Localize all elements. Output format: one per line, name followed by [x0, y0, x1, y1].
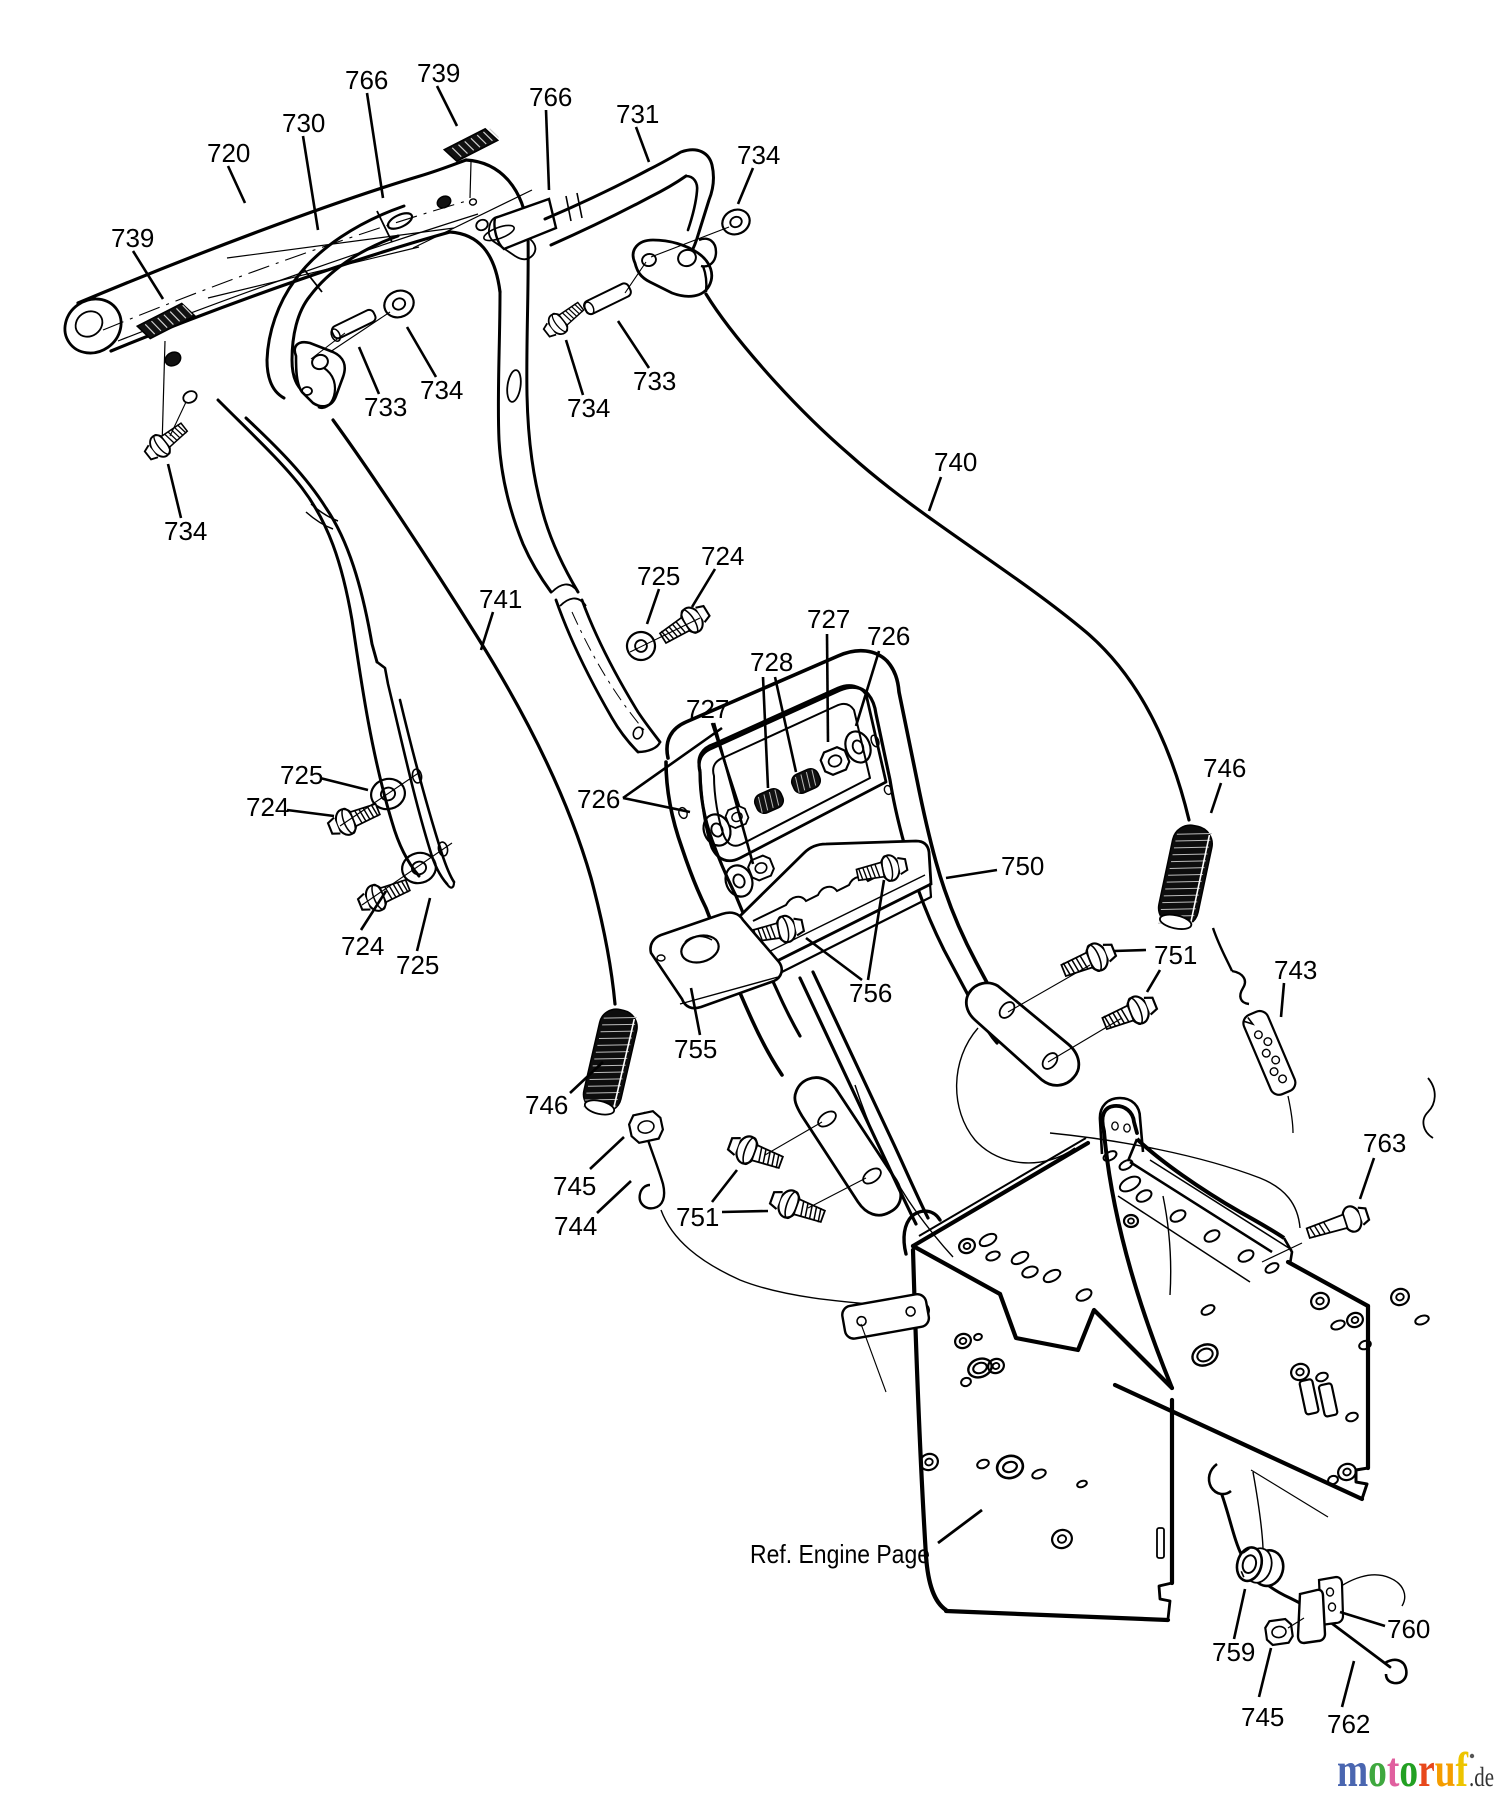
svg-text:727: 727 — [686, 694, 729, 724]
svg-text:727: 727 — [807, 604, 850, 634]
svg-text:725: 725 — [396, 950, 439, 980]
svg-text:734: 734 — [567, 393, 610, 423]
svg-text:740: 740 — [934, 447, 977, 477]
svg-text:746: 746 — [1203, 753, 1246, 783]
svg-text:725: 725 — [637, 561, 680, 591]
svg-text:733: 733 — [364, 392, 407, 422]
svg-text:751: 751 — [1154, 940, 1197, 970]
svg-text:734: 734 — [737, 140, 780, 170]
svg-text:766: 766 — [345, 65, 388, 95]
svg-text:724: 724 — [701, 541, 744, 571]
svg-text:745: 745 — [553, 1171, 596, 1201]
svg-text:726: 726 — [867, 621, 910, 651]
svg-text:.de: .de — [1469, 1762, 1494, 1792]
svg-text:Ref. Engine Page: Ref. Engine Page — [750, 1539, 930, 1569]
svg-text:725: 725 — [280, 760, 323, 790]
svg-text:741: 741 — [479, 584, 522, 614]
svg-text:750: 750 — [1001, 851, 1044, 881]
svg-text:756: 756 — [849, 978, 892, 1008]
svg-text:724: 724 — [246, 792, 289, 822]
svg-text:766: 766 — [529, 82, 572, 112]
svg-text:720: 720 — [207, 138, 250, 168]
svg-text:746: 746 — [525, 1090, 568, 1120]
svg-text:728: 728 — [750, 647, 793, 677]
svg-text:745: 745 — [1241, 1702, 1284, 1732]
svg-text:739: 739 — [417, 58, 460, 88]
svg-text:730: 730 — [282, 108, 325, 138]
svg-text:734: 734 — [420, 375, 463, 405]
svg-text:751: 751 — [676, 1202, 719, 1232]
svg-text:739: 739 — [111, 223, 154, 253]
svg-text:744: 744 — [554, 1211, 597, 1241]
svg-text:759: 759 — [1212, 1637, 1255, 1667]
svg-text:726: 726 — [577, 784, 620, 814]
svg-text:755: 755 — [674, 1034, 717, 1064]
svg-text:731: 731 — [616, 99, 659, 129]
svg-text:734: 734 — [164, 516, 207, 546]
svg-text:motoruf: motoruf — [1337, 1742, 1469, 1797]
svg-text:724: 724 — [341, 931, 384, 961]
svg-text:733: 733 — [633, 366, 676, 396]
svg-text:763: 763 — [1363, 1128, 1406, 1158]
svg-text:762: 762 — [1327, 1709, 1370, 1739]
svg-text:760: 760 — [1387, 1614, 1430, 1644]
svg-text:743: 743 — [1274, 955, 1317, 985]
